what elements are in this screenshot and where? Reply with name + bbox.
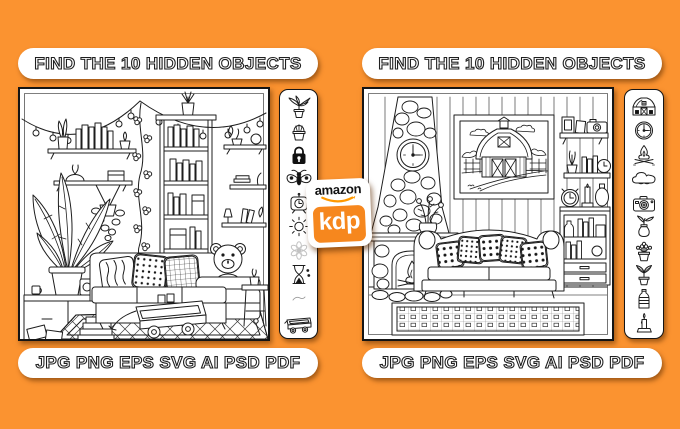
amazon-kdp-badge: amazon kdp <box>306 178 373 249</box>
padlock-icon <box>284 143 314 166</box>
candle-icon <box>629 311 659 334</box>
formats-right-text: JPG PNG EPS SVG AI PSD PDF <box>380 353 645 373</box>
flower-pot-icon <box>629 239 659 262</box>
camera-icon <box>629 191 659 214</box>
headline-right: FIND THE 10 HIDDEN OBJECTS <box>362 48 662 79</box>
coloring-page-left <box>18 87 270 341</box>
kdp-logo-square: kdp <box>313 205 367 243</box>
cactus-icon <box>284 119 314 142</box>
headline-left: FIND THE 10 HIDDEN OBJECTS <box>18 48 318 79</box>
gig-promo-image: { "colors": { "background": "#FB9330", "… <box>0 0 680 429</box>
wall-clock-icon <box>629 119 659 142</box>
wagon-icon <box>284 311 314 334</box>
hourglass-icon <box>284 263 314 286</box>
amazon-smile-icon <box>319 194 357 205</box>
formats-left-text: JPG PNG EPS SVG AI PSD PDF <box>36 353 301 373</box>
headline-left-text: FIND THE 10 HIDDEN OBJECTS <box>34 54 301 74</box>
headline-right-text: FIND THE 10 HIDDEN OBJECTS <box>378 54 645 74</box>
formats-left: JPG PNG EPS SVG AI PSD PDF <box>18 348 318 378</box>
kdp-logo-text: kdp <box>318 209 360 235</box>
campfire-icon <box>629 143 659 166</box>
boho-living-room-scene <box>20 89 268 339</box>
formats-right: JPG PNG EPS SVG AI PSD PDF <box>362 348 662 378</box>
plant-sprout-icon <box>629 263 659 286</box>
vase-sprout-icon <box>629 215 659 238</box>
barn-icon <box>629 95 659 118</box>
bottle-icon <box>629 287 659 310</box>
doodle-mark-icon <box>284 287 314 310</box>
farmhouse-living-room-scene <box>364 89 612 339</box>
hidden-objects-strip-right <box>624 89 664 339</box>
cloud-icon <box>629 167 659 190</box>
houseplant-icon <box>284 95 314 118</box>
coloring-page-right <box>362 87 614 341</box>
